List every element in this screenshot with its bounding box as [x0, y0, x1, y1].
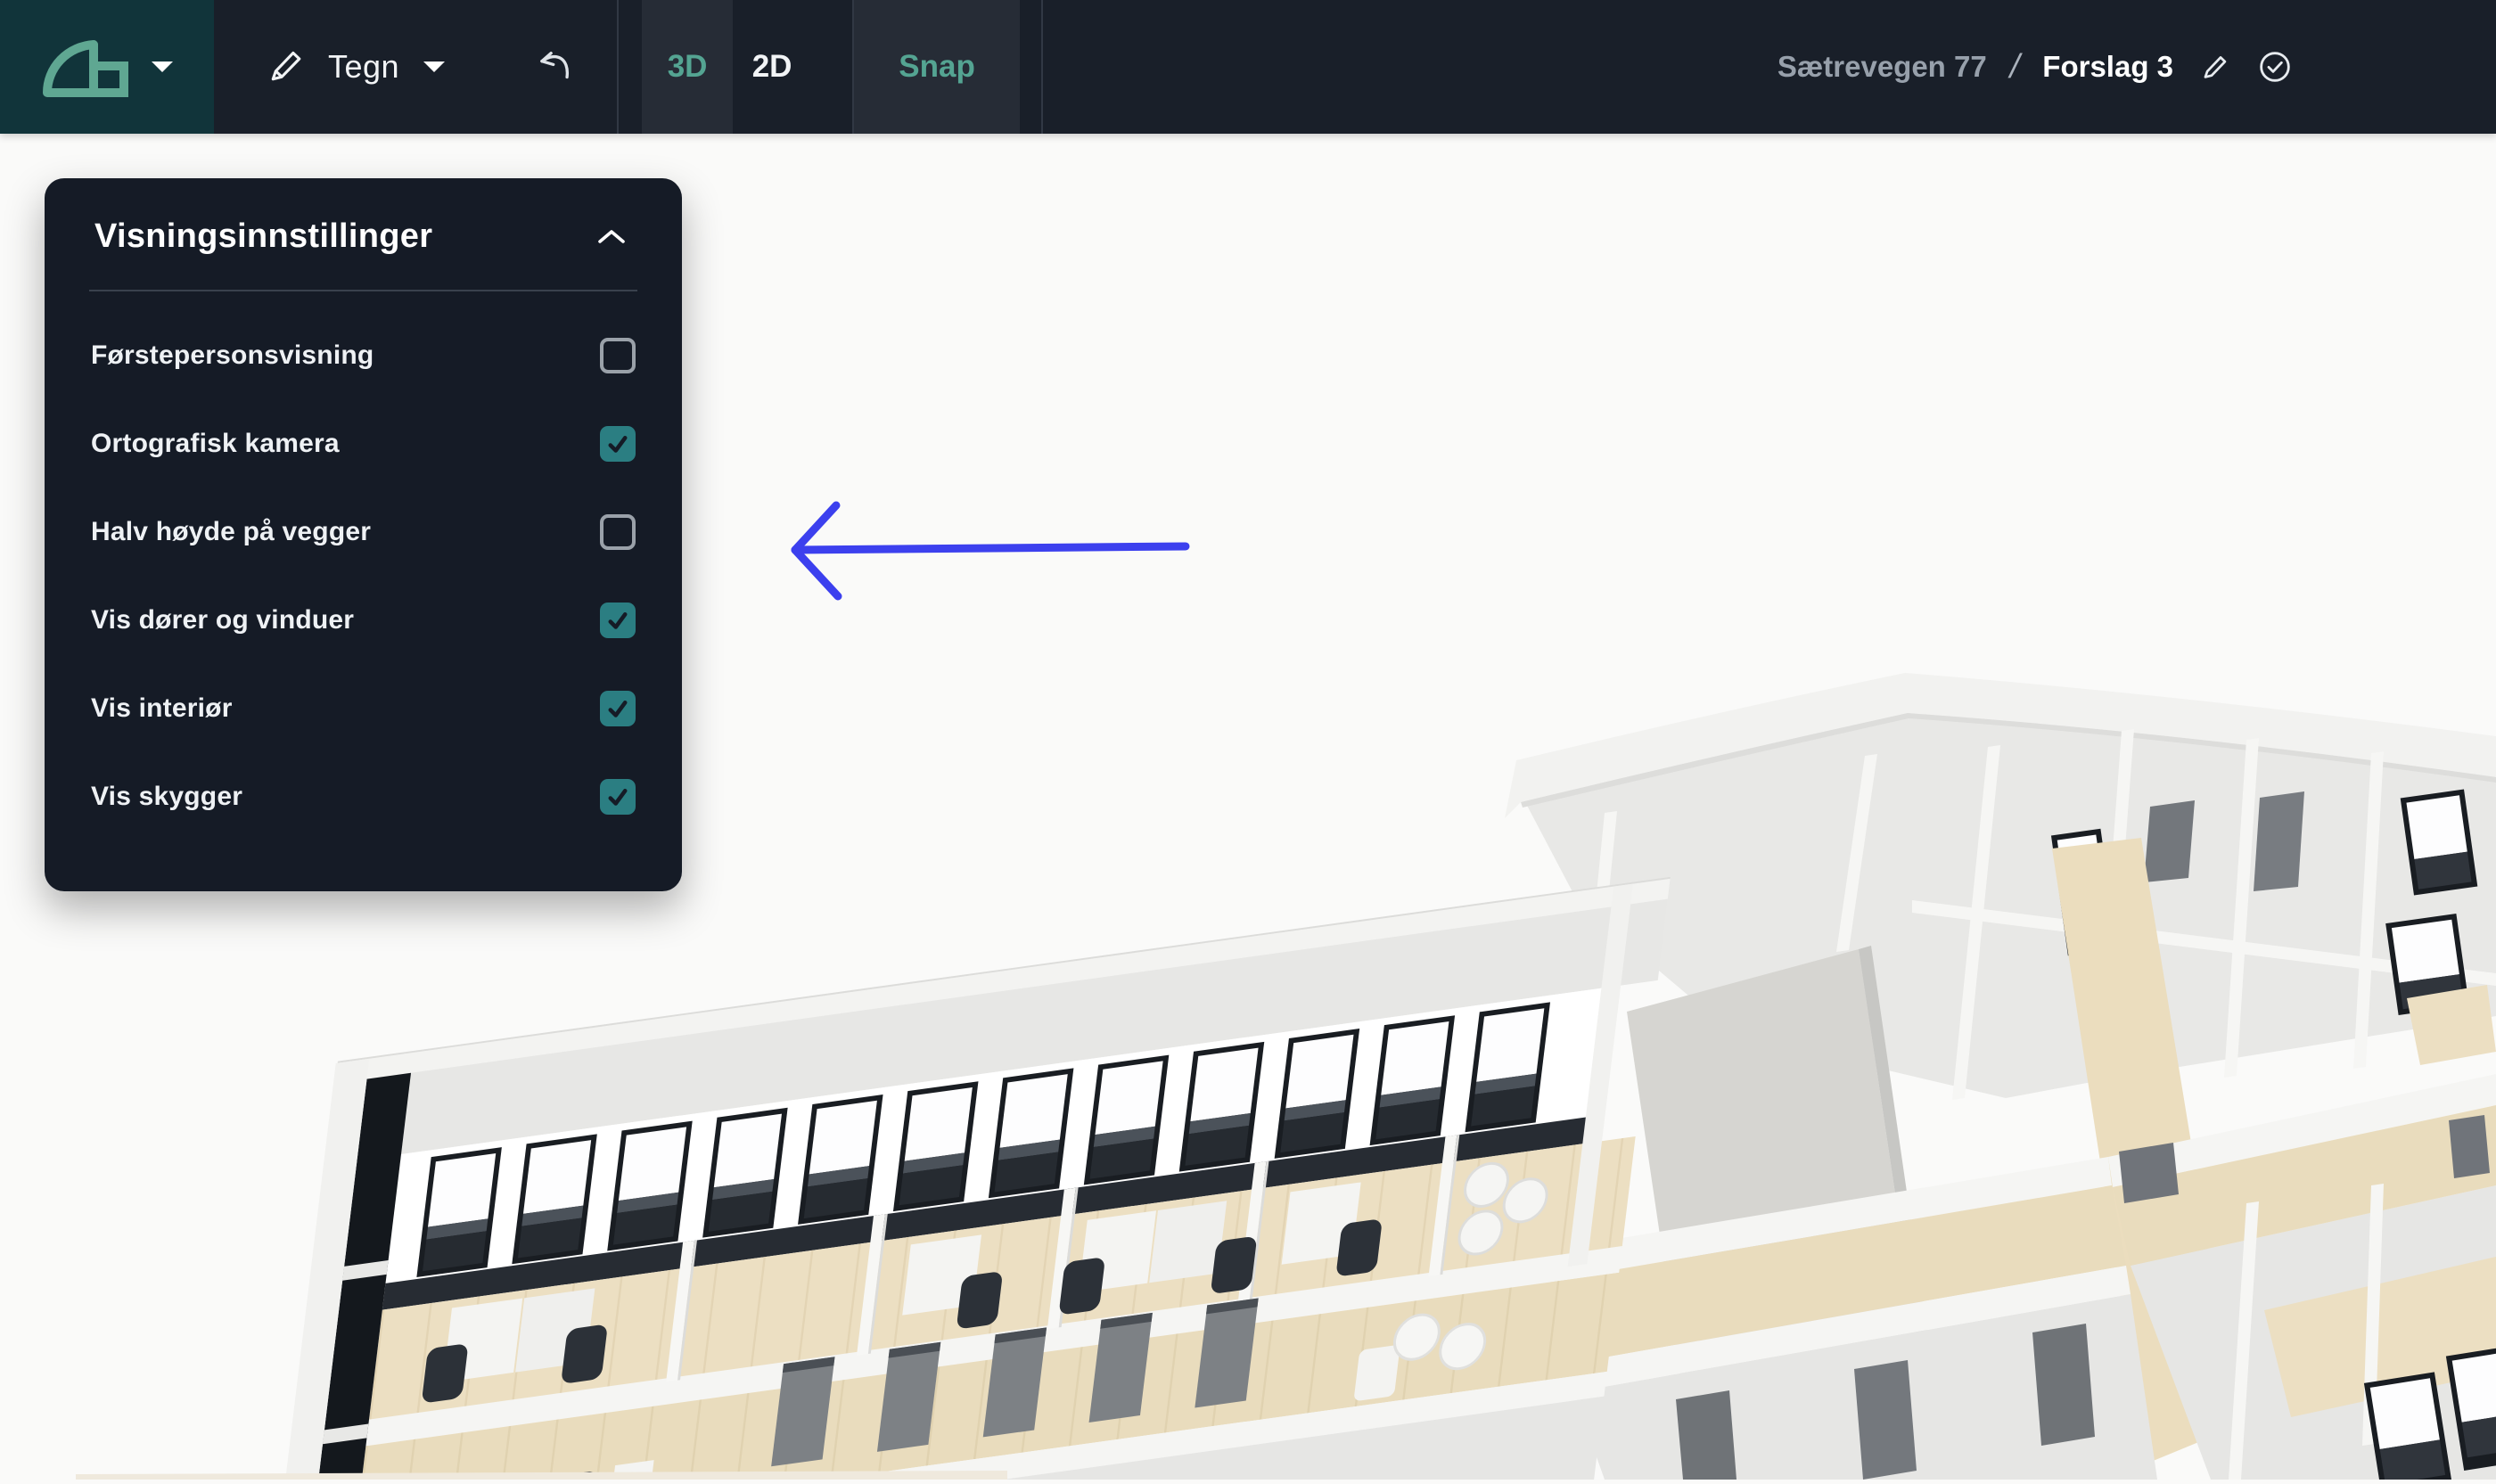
check-icon — [604, 607, 631, 634]
checkbox-f-rstepersonsvisning[interactable] — [600, 338, 636, 373]
option-label: Ortografisk kamera — [91, 429, 340, 459]
undo-button[interactable] — [531, 46, 578, 87]
view-3d-label: 3D — [668, 49, 708, 85]
options-list: Førstepersonsvisning Ortografisk kamera … — [91, 291, 636, 840]
draw-tool-label: Tegn — [328, 48, 399, 86]
option-row-halv-h-yde-p-vegger: Halv høyde på vegger — [91, 488, 636, 576]
checkbox-halv-h-yde-p-vegger[interactable] — [600, 514, 636, 550]
chevron-down-icon — [151, 61, 174, 73]
breadcrumb-project-name: Sætrevegen 77 — [1778, 50, 1987, 84]
snap-toggle-button[interactable]: Snap — [854, 0, 1020, 134]
option-row-vis-skygger: Vis skygger — [91, 752, 636, 840]
option-row-vis-interi-r: Vis interiør — [91, 664, 636, 752]
option-row-f-rstepersonsvisning: Førstepersonsvisning — [91, 311, 636, 399]
breadcrumb-separator: / — [2006, 48, 2024, 86]
pencil-icon — [266, 47, 305, 86]
checkbox-ortografisk-kamera[interactable] — [600, 426, 636, 462]
snap-label: Snap — [899, 49, 975, 85]
mid-bottom-rooms — [1547, 1157, 2157, 1480]
toolbar-separator — [1041, 0, 1043, 134]
option-row-ortografisk-kamera: Ortografisk kamera — [91, 399, 636, 488]
breadcrumb: Sætrevegen 77 / Forslag 3 — [1778, 48, 2293, 86]
app-logo-icon — [40, 32, 133, 102]
check-icon — [604, 783, 631, 810]
view-2d-label: 2D — [752, 49, 792, 85]
breadcrumb-proposal-name: Forslag 3 — [2042, 50, 2173, 84]
checkbox-vis-interi-r[interactable] — [600, 691, 636, 726]
option-label: Halv høyde på vegger — [91, 517, 371, 547]
toolbar-separator — [617, 0, 619, 134]
approve-proposal-button[interactable] — [2257, 49, 2293, 85]
view-2d-button[interactable]: 2D — [733, 0, 811, 134]
panel-title: Visningsinnstillinger — [94, 217, 432, 256]
option-label: Vis dører og vinduer — [91, 605, 354, 635]
option-label: Førstepersonsvisning — [91, 340, 374, 371]
checkbox-vis-skygger[interactable] — [600, 779, 636, 815]
front-wing — [257, 877, 1671, 1480]
view-settings-panel: Visningsinnstillinger Førstepersonsvisni… — [45, 178, 682, 891]
collapse-panel-button[interactable] — [591, 223, 632, 251]
rename-proposal-button[interactable] — [2198, 50, 2232, 84]
option-label: Vis interiør — [91, 693, 233, 724]
app-logo-button[interactable] — [0, 0, 214, 134]
option-row-vis-d-rer-og-vinduer: Vis dører og vinduer — [91, 576, 636, 664]
draw-tool-button[interactable]: Tegn — [266, 47, 446, 86]
panel-header: Visningsinnstillinger — [91, 178, 636, 290]
view-3d-button[interactable]: 3D — [642, 0, 733, 134]
topbar: Tegn 3D 2D Snap Sætrevegen 77 / Forslag … — [0, 0, 2496, 134]
option-label: Vis skygger — [91, 782, 242, 812]
checkbox-vis-d-rer-og-vinduer[interactable] — [600, 603, 636, 638]
chevron-down-icon — [423, 61, 446, 73]
check-icon — [604, 430, 631, 457]
check-icon — [604, 695, 631, 722]
